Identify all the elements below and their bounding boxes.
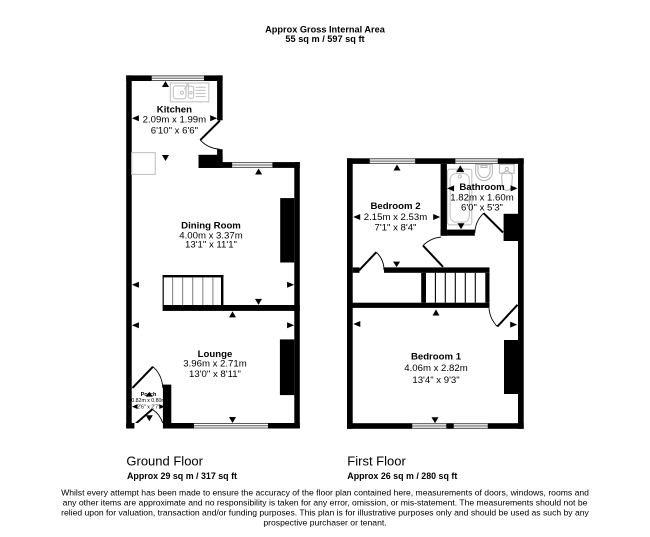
svg-text:Approx 26 sq m / 280 sq ft: Approx 26 sq m / 280 sq ft [347,471,457,481]
svg-text:2'6" x 2'7": 2'6" x 2'7" [137,404,160,410]
svg-text:Bedroom 1: Bedroom 1 [411,352,462,363]
svg-text:Whilst every attempt has been: Whilst every attempt has been made to en… [61,488,589,498]
svg-text:6'10" x 6'6": 6'10" x 6'6" [151,125,198,136]
svg-text:13'1" x 11'1": 13'1" x 11'1" [185,240,237,251]
svg-text:0.82m x 0.80m: 0.82m x 0.80m [131,398,165,404]
svg-text:55 sq m / 597 sq ft: 55 sq m / 597 sq ft [285,34,364,44]
svg-text:relied upon for valuation, tra: relied upon for valuation, transaction a… [61,508,589,518]
svg-text:2.09m x 1.99m: 2.09m x 1.99m [143,115,206,126]
svg-text:4.06m x 2.82m: 4.06m x 2.82m [404,363,467,374]
svg-text:Approx 29 sq m / 317 sq ft: Approx 29 sq m / 317 sq ft [127,471,237,481]
svg-text:Bedroom 2: Bedroom 2 [370,201,420,212]
svg-text:First Floor: First Floor [347,453,406,468]
svg-text:prospective purchaser or tenan: prospective purchaser or tenant. [263,518,386,528]
svg-text:6'0" x 5'3": 6'0" x 5'3" [461,203,503,214]
svg-text:any other items are approximat: any other items are approximate and no r… [63,498,588,508]
svg-text:2.15m x 2.53m: 2.15m x 2.53m [364,212,427,223]
svg-text:7'1" x 8'4": 7'1" x 8'4" [375,222,417,233]
svg-text:Approx Gross Internal Area: Approx Gross Internal Area [265,25,386,35]
svg-text:13'0" x 8'11": 13'0" x 8'11" [189,369,241,380]
svg-text:13'4" x 9'3": 13'4" x 9'3" [412,375,459,386]
svg-text:Ground Floor: Ground Floor [126,453,203,468]
